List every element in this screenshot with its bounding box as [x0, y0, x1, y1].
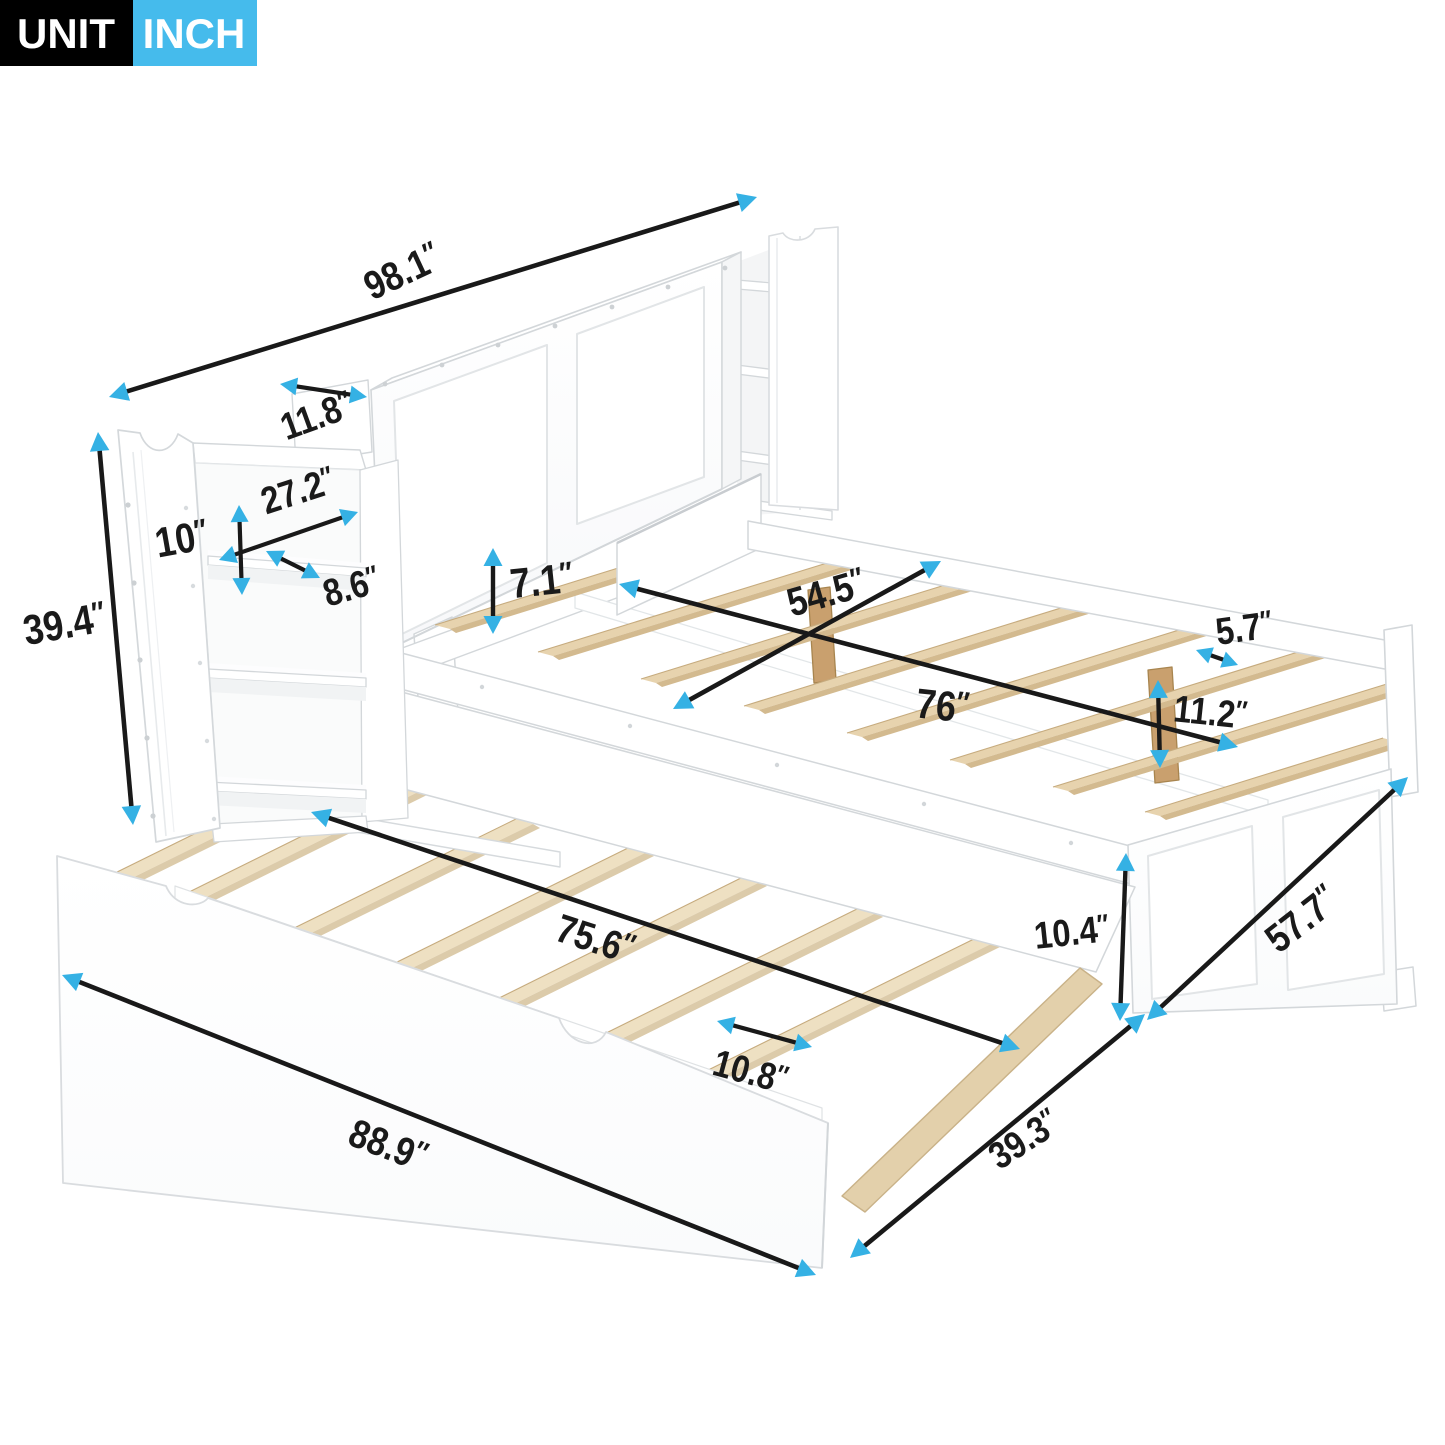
svg-text:INCH: INCH [143, 10, 246, 57]
svg-text:UNIT: UNIT [17, 10, 115, 57]
